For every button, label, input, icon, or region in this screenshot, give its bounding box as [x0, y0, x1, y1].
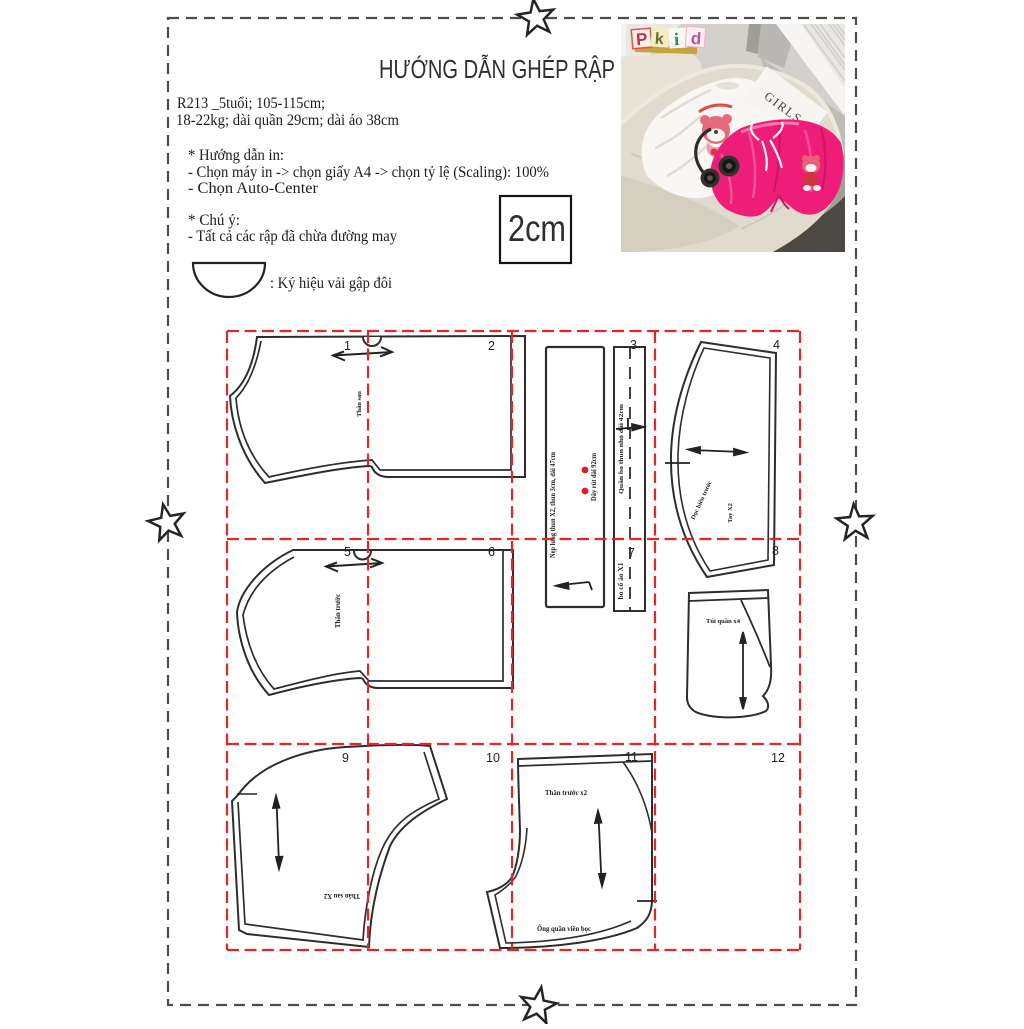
svg-text:: Ký hiệu vải gập đôi: : Ký hiệu vải gập đôi	[270, 275, 393, 292]
svg-text:Thân trước: Thân trước	[334, 594, 342, 628]
svg-text:Quần bo thun nhỏ dài 42cm: Quần bo thun nhỏ dài 42cm	[618, 404, 625, 494]
svg-text:8: 8	[772, 544, 779, 558]
svg-text:- Tất cả các rập đã chừa đường: - Tất cả các rập đã chừa đường may	[188, 228, 397, 245]
svg-text:* Hướng dẫn in:: * Hướng dẫn in:	[188, 147, 284, 164]
svg-text:12: 12	[771, 751, 785, 765]
svg-text:HƯỚNG DẪN GHÉP RẬP: HƯỚNG DẪN GHÉP RẬP	[379, 54, 615, 84]
svg-text:18-22kg; dài quần 29cm; dài á: 18-22kg; dài quần 29cm; dài áo 38cm	[176, 112, 400, 129]
svg-text:- Chọn Auto-Center: - Chọn Auto-Center	[188, 180, 319, 197]
svg-text:P: P	[635, 29, 648, 49]
svg-text:Thân sau X2: Thân sau X2	[324, 892, 360, 900]
svg-text:i: i	[674, 29, 680, 49]
svg-text:4: 4	[773, 338, 780, 352]
svg-text:k: k	[654, 31, 664, 49]
svg-text:- Chọn máy in -> chọn giấy A4: - Chọn máy in -> chọn giấy A4 -> chọn tỷ…	[188, 164, 549, 181]
svg-text:Tay X2: Tay X2	[727, 503, 734, 523]
svg-text:7: 7	[628, 546, 635, 560]
svg-text:Thân trước x2: Thân trước x2	[545, 789, 587, 797]
svg-text:Túi quần x4: Túi quần x4	[706, 618, 741, 625]
svg-text:Ống quần viền bọc: Ống quần viền bọc	[537, 925, 591, 933]
svg-text:10: 10	[486, 751, 500, 765]
svg-text:6: 6	[488, 545, 495, 559]
svg-text:9: 9	[342, 751, 349, 765]
svg-text:5: 5	[344, 545, 351, 559]
svg-text:d: d	[690, 29, 702, 49]
svg-text:Thân sau: Thân sau	[356, 391, 363, 417]
svg-text:Nẹp lưng thun X2, thun 3cm, dà: Nẹp lưng thun X2, thun 3cm, dài 47cm	[549, 452, 557, 558]
svg-text:2: 2	[488, 339, 495, 353]
svg-text:2cm: 2cm	[508, 208, 566, 249]
svg-text:R213 _5tuổi; 105-115cm;: R213 _5tuổi; 105-115cm;	[177, 95, 325, 112]
svg-text:11: 11	[625, 750, 638, 764]
svg-text:bo cổ áo X1: bo cổ áo X1	[616, 562, 625, 599]
svg-text:3: 3	[630, 338, 637, 352]
svg-text:1: 1	[344, 339, 351, 353]
svg-text:* Chú ý:: * Chú ý:	[188, 212, 240, 229]
svg-text:Dây rút dài 92cm: Dây rút dài 92cm	[590, 453, 598, 501]
